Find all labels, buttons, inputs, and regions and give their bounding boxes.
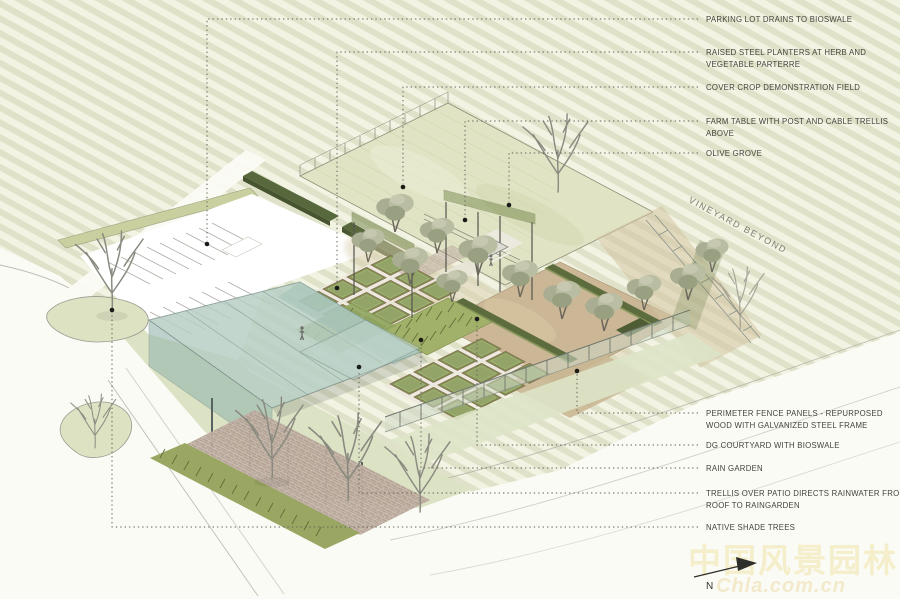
north-label: N (706, 581, 713, 592)
label-native-trees: NATIVE SHADE TREES (706, 523, 795, 532)
site-plan-sheet: PARKING LOT DRAINS TO BIOSWALE RAISED ST… (0, 0, 900, 599)
label-trellis-patio: TRELLIS OVER PATIO DIRECTS RAINWATER FRO… (706, 489, 900, 498)
label-parking-lot: PARKING LOT DRAINS TO BIOSWALE (706, 15, 852, 24)
watermark-text: 中国风景园林网 (688, 542, 900, 579)
label-raised-planters-2: VEGETABLE PARTERRE (706, 60, 800, 69)
label-dg-courtyard: DG COURTYARD WITH BIOSWALE (706, 441, 840, 450)
label-farm-table: FARM TABLE WITH POST AND CABLE TRELLIS (706, 117, 888, 126)
axonometric-site-plan: PARKING LOT DRAINS TO BIOSWALE RAISED ST… (0, 0, 900, 599)
label-trellis-patio-2: ROOF TO RAINGARDEN (706, 501, 800, 510)
label-perimeter-fence: PERIMETER FENCE PANELS - REPURPOSED (706, 409, 883, 418)
label-perimeter-fence-2: WOOD WITH GALVANIZED STEEL FRAME (706, 421, 868, 430)
label-cover-crop: COVER CROP DEMONSTRATION FIELD (706, 83, 860, 92)
label-raised-planters: RAISED STEEL PLANTERS AT HERB AND (706, 48, 866, 57)
label-olive-grove: OLIVE GROVE (706, 149, 762, 158)
label-farm-table-2: ABOVE (706, 129, 734, 138)
label-rain-garden: RAIN GARDEN (706, 464, 763, 473)
watermark-url: Chla.com.cn (716, 575, 846, 597)
